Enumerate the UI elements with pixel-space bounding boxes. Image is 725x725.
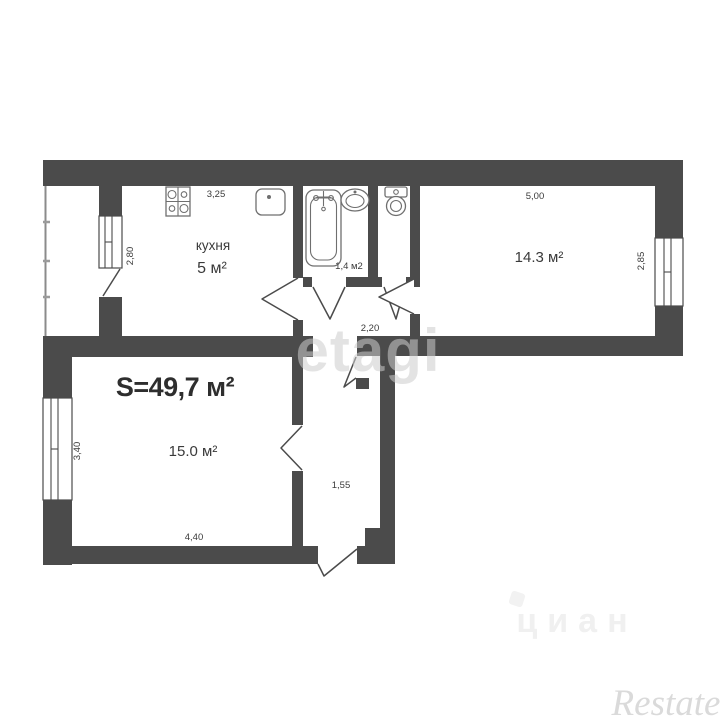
watermark-etagi: etagi xyxy=(295,317,440,384)
toilet-icon xyxy=(385,187,407,216)
total-area-label: S=49,7 м² xyxy=(116,372,235,402)
wall-segment xyxy=(99,297,122,336)
kitchen-door-swing xyxy=(262,278,298,320)
kitchen-area-label: 5 м² xyxy=(197,260,227,277)
wall-segment xyxy=(303,277,312,287)
dim-bedroom-depth: 3,40 xyxy=(72,442,83,461)
sink-drain xyxy=(267,195,271,199)
floor-plan-page: 3,25 кухня 5 м² 1,4 м2 5,00 14.3 м² 2,85… xyxy=(0,0,725,725)
wall-segment xyxy=(346,277,382,287)
dim-living-width: 5,00 xyxy=(526,191,545,202)
living-room-area-label: 14.3 м² xyxy=(515,249,564,266)
bathtub-icon xyxy=(306,190,341,266)
bathroom-door-swing xyxy=(313,287,345,319)
toilet-bowl xyxy=(387,197,406,216)
dim-kitchen-width: 3,25 xyxy=(207,189,226,200)
bedroom-window xyxy=(43,398,72,500)
dim-living-depth: 2,85 xyxy=(636,252,647,271)
living-room-window xyxy=(655,238,683,306)
toilet-tank xyxy=(385,187,407,197)
wall-segment xyxy=(293,186,303,278)
floor-plan-canvas: 3,25 кухня 5 м² 1,4 м2 5,00 14.3 м² 2,85… xyxy=(0,0,725,725)
watermark-cian: циан xyxy=(516,602,637,640)
dim-corridor-width: 1,55 xyxy=(332,480,351,491)
wall-segment xyxy=(43,357,72,398)
bedroom-area-label: 15.0 м² xyxy=(169,443,218,460)
washbasin-tap xyxy=(354,191,357,194)
bedroom-door-swing xyxy=(281,426,302,470)
stove-icon xyxy=(166,187,190,216)
dim-bedroom-width: 4,40 xyxy=(185,532,204,543)
bath-area-label: 1,4 м2 xyxy=(335,261,363,272)
wall-segment xyxy=(43,546,318,564)
watermarks: etagi циан Restate xyxy=(295,317,720,724)
kitchen-name-label: кухня xyxy=(196,238,230,253)
watermark-restate: Restate xyxy=(611,683,721,724)
dim-kitchen-depth: 2,80 xyxy=(125,247,136,266)
wall-segment xyxy=(43,160,683,186)
wall-segment xyxy=(357,546,395,564)
kitchen-window xyxy=(99,216,122,268)
wall-segment xyxy=(365,528,395,546)
balcony-door-swing xyxy=(103,269,120,296)
sink-basin xyxy=(256,189,285,215)
wall-segment xyxy=(410,186,420,277)
wall-segment xyxy=(292,471,303,546)
wall-segment xyxy=(43,336,313,357)
wall-segment xyxy=(99,186,122,216)
wall-segment xyxy=(655,186,683,238)
entrance-door-swing xyxy=(318,549,357,576)
washbasin-icon xyxy=(341,189,369,211)
sink-icon xyxy=(256,189,285,215)
